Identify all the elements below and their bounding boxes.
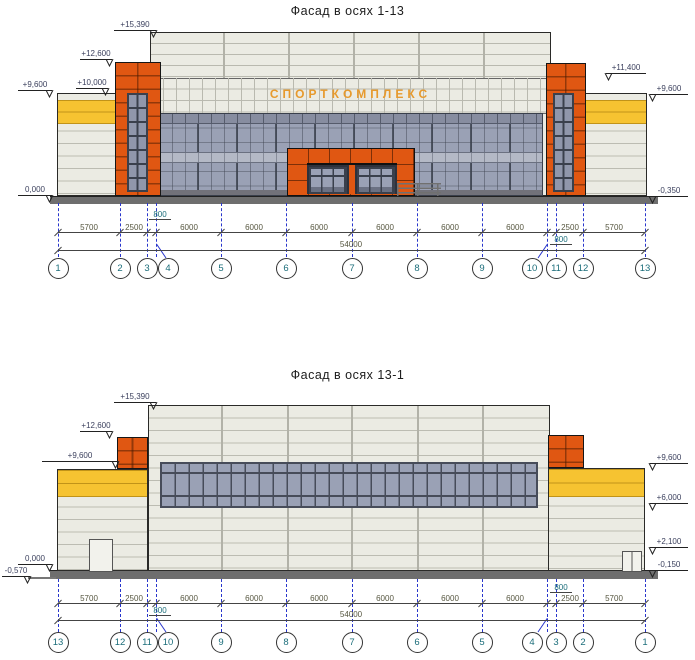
elevation-arrow-icon [105,431,114,439]
elevation-marker: -0,150 [650,560,688,571]
axis-bubble: 12 [573,258,594,279]
dim-value: 6000 [237,223,271,232]
axis-bubble: 7 [342,258,363,279]
elevation-marker: +15,390 [114,20,156,31]
elevation-arrow-icon [604,73,613,81]
panel-joint [353,33,355,78]
elevation-marker: +2,100 [650,537,688,548]
entrance-door-right [357,167,395,194]
dim-value: 6000 [498,223,532,232]
elevation-label: +12,600 [81,421,110,430]
building-sign-text: СПОРТКОМПЛЕКС [151,87,550,101]
dim-value: 6000 [172,594,206,603]
elevation-label: -0,350 [658,186,681,195]
facade2-right-door [622,551,642,572]
facade1-title: Фасад в осях 1-13 [0,4,695,18]
elevation-arrow-icon [648,503,657,511]
elevation-marker: +9,600 [650,84,688,95]
panel-joint [288,33,290,78]
elevation-arrow-icon [149,402,158,410]
axis-bubble: 13 [635,258,656,279]
elevation-arrow-icon [45,90,54,98]
entrance-center-mullion [349,165,355,194]
dim-value: 2500 [117,594,151,603]
axis-bubble: 6 [276,258,297,279]
axis-bubble: 3 [137,258,158,279]
dim-value: 5700 [72,594,106,603]
elevation-arrow-icon [105,59,114,67]
elevation-arrow-icon [648,547,657,555]
axis-bubble: 10 [522,258,543,279]
elevation-marker: -0,570 [2,566,30,577]
dim-line-total [58,250,645,251]
elevation-marker: +10,000 [76,78,108,89]
elevation-label: +9,600 [657,84,682,93]
elevation-marker: -0,350 [650,186,688,197]
facade2-right-wing [548,468,645,571]
dim-value: 2500 [553,223,587,232]
facade1-sign-band: СПОРТКОМПЛЕКС [151,78,550,114]
axis-bubble: 1 [635,632,656,653]
entrance-door-left [309,167,347,194]
elevation-label: +2,100 [657,537,682,546]
elevation-marker: +9,600 [18,80,52,91]
facade1-right-wing [585,93,647,196]
axis-bubble: 8 [276,632,297,653]
facade1-parapet [151,33,550,79]
dim-line-segments [58,603,645,604]
elevation-marker: +9,600 [650,453,688,464]
facade2-ground-step [28,577,56,579]
elevation-label: -0,150 [658,560,681,569]
entrance-railing [397,183,441,196]
axis-bubble: 5 [472,632,493,653]
dim-value: 6000 [433,594,467,603]
axis-bubble: 4 [522,632,543,653]
axis-line [147,579,148,632]
facade2-left-pilaster-top [117,437,148,469]
facade2-left-wing [57,469,148,571]
axis-bubble: 11 [137,632,158,653]
elevation-label: +9,600 [68,451,93,460]
dim-line-total [58,620,645,621]
dim-value: 6000 [172,223,206,232]
elevation-label: +10,000 [77,78,106,87]
elevation-label: +15,390 [120,20,149,29]
dim-value-800: 800 [550,235,572,245]
elevation-marker: +9,600 [42,451,118,462]
dim-value: 6000 [302,223,336,232]
axis-line [482,579,483,632]
panel-joint [223,33,225,78]
elevation-label: -0,570 [5,566,28,575]
facade2-right-yellow-band [549,469,644,497]
dim-value: 2500 [553,594,587,603]
elevation-label: +9,600 [657,453,682,462]
facade2-plinth [50,570,658,579]
elevation-arrow-icon [23,576,32,584]
elevation-arrow-icon [648,94,657,102]
dim-line-segments [58,232,645,233]
elevation-arrow-icon [648,570,657,578]
axis-bubble: 3 [546,632,567,653]
elevation-label: +12,600 [81,49,110,58]
elevation-arrow-icon [648,196,657,204]
elevation-arrow-icon [101,88,110,96]
dim-total: 54000 [291,610,411,619]
facade-drawing-sheet: Фасад в осях 1-13 СПОРТКОМПЛЕКС [0,0,695,660]
dim-total: 54000 [291,240,411,249]
axis-line [58,579,59,632]
dim-value: 6000 [302,594,336,603]
dim-value-800: 800 [149,606,171,616]
elevation-arrow-icon [45,564,54,572]
dim-value: 6000 [368,223,402,232]
facade2-left-yellow-band [58,470,147,497]
dim-value: 6000 [433,223,467,232]
facade1-right-pilaster [546,63,586,196]
dim-value-800: 800 [149,210,171,220]
axis-bubble: 2 [573,632,594,653]
axis-bubble: 7 [342,632,363,653]
elevation-arrow-icon [149,30,158,38]
facade1-plinth [50,196,658,204]
axis-line [645,579,646,632]
elevation-marker: +11,400 [606,63,646,74]
axis-line [583,579,584,632]
elevation-label: +15,390 [120,392,149,401]
dim-value: 5700 [597,223,631,232]
facade1-left-pilaster [115,62,161,196]
axis-bubble: 2 [110,258,131,279]
elevation-arrow-icon [648,463,657,471]
dim-value: 5700 [597,594,631,603]
facade1-right-yellow-band [586,100,646,124]
axis-line [286,579,287,632]
axis-bubble: 9 [211,632,232,653]
dim-value: 5700 [72,223,106,232]
axis-line [352,579,353,632]
elevation-label: 0,000 [25,554,45,563]
axis-bubble: 8 [407,258,428,279]
pilaster-window-strip [553,93,574,192]
axis-bubble: 5 [211,258,232,279]
entrance-opening [307,163,397,194]
elevation-arrow-icon [45,195,54,203]
elevation-marker: +6,000 [650,493,688,504]
elevation-marker: +15,390 [114,392,156,403]
elevation-marker: +12,600 [80,49,112,60]
axis-bubble: 11 [546,258,567,279]
dim-value-800: 800 [550,583,572,593]
dim-value: 6000 [237,594,271,603]
elevation-label: +11,400 [612,63,641,72]
axis-line [120,579,121,632]
dim-value: 6000 [498,594,532,603]
pilaster-window-strip [127,93,148,192]
axis-bubble: 12 [110,632,131,653]
axis-bubble: 1 [48,258,69,279]
elevation-marker: +12,600 [80,421,112,432]
dim-value: 2500 [117,223,151,232]
axis-line [417,579,418,632]
panel-joint [483,33,485,78]
axis-line [221,579,222,632]
elevation-marker: 0,000 [18,554,52,565]
elevation-arrow-icon [111,461,120,469]
bubble-leader [537,244,549,259]
elevation-label: 0,000 [25,185,45,194]
facade2-ribbon-window [160,462,538,508]
panel-joint [418,33,420,78]
facade2-right-pilaster-top [548,435,584,468]
facade2-title: Фасад в осях 13-1 [0,368,695,382]
elevation-marker: 0,000 [18,185,52,196]
axis-bubble: 10 [158,632,179,653]
axis-bubble: 6 [407,632,428,653]
dim-value: 6000 [368,594,402,603]
facade1-entrance-portal [287,148,415,196]
elevation-label: +6,000 [657,493,682,502]
bubble-leader [156,244,168,259]
curtain-top-row [160,114,542,124]
facade2-left-door [89,539,113,572]
elevation-label: +9,600 [23,80,48,89]
axis-bubble: 4 [158,258,179,279]
axis-bubble: 13 [48,632,69,653]
axis-bubble: 9 [472,258,493,279]
